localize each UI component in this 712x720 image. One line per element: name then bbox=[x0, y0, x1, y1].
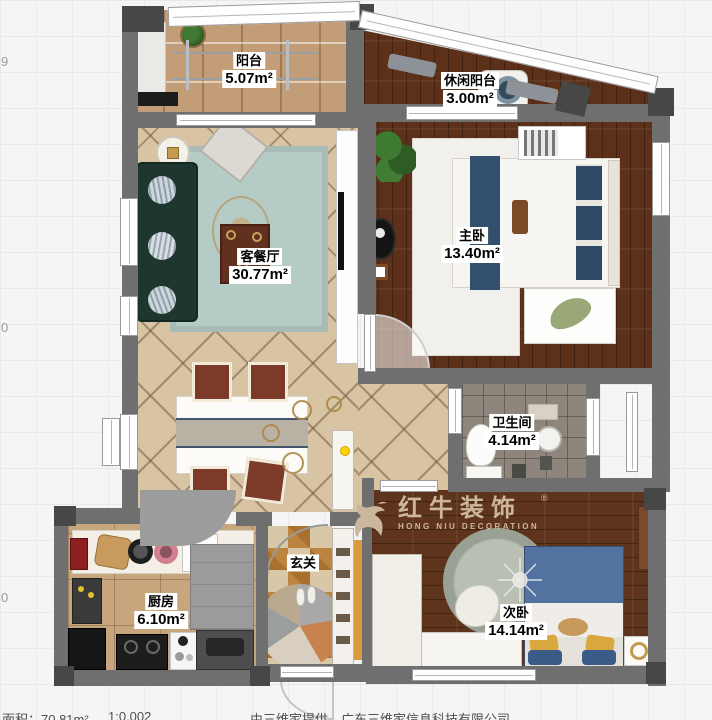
leisure-balcony-sliding-door bbox=[406, 106, 518, 120]
room-area: 4.14m² bbox=[485, 432, 539, 450]
second-bedroom-right-wall bbox=[648, 488, 666, 686]
second-bedroom-door-threshold bbox=[380, 480, 438, 492]
coffee-table-candle-2 bbox=[252, 232, 262, 242]
left-dimension-digit-2: 0 bbox=[1, 320, 8, 335]
room-label-kitchen: 厨房 6.10m² bbox=[134, 593, 188, 629]
cutting-board bbox=[93, 533, 132, 570]
brand-name-cn: 红牛装饰 bbox=[398, 496, 539, 522]
master-plant bbox=[372, 126, 416, 182]
footer-credit: 由三维家提供，广东三维家信息科技有限公司 bbox=[250, 709, 510, 720]
bull-icon bbox=[348, 496, 392, 542]
room-name: 卫生间 bbox=[489, 414, 534, 431]
kitchen-bottom-wall bbox=[54, 670, 268, 686]
room-label-second-bedroom: 次卧 14.14m² bbox=[485, 604, 547, 640]
entry-shoes bbox=[296, 588, 305, 606]
master-bed-tray bbox=[512, 200, 528, 234]
second-bedroom-se-post bbox=[646, 662, 666, 684]
room-area: 14.14m² bbox=[485, 622, 547, 640]
shower-control bbox=[540, 456, 552, 470]
room-label-living-dining: 客餐厅 30.77m² bbox=[229, 248, 291, 284]
footer-scale: 1:0.002 bbox=[108, 709, 151, 720]
room-area: 5.07m² bbox=[222, 70, 276, 88]
second-bed-bolster bbox=[558, 618, 588, 636]
coffee-table-candle-1 bbox=[226, 230, 236, 240]
floor-plan-canvas: 红牛装饰 HONG NIU DECORATION ® 阳台 5.07m² 休闲阳… bbox=[0, 0, 712, 720]
ceiling-fan-icon bbox=[498, 558, 542, 602]
sink-drain bbox=[178, 636, 188, 646]
room-name: 玄关 bbox=[287, 555, 319, 572]
kitchen-left-wall bbox=[54, 524, 68, 684]
drying-rack-pole-2 bbox=[286, 40, 289, 90]
bathroom-window bbox=[586, 398, 600, 456]
master-bed-pillows bbox=[576, 164, 602, 280]
chandelier-ring-3 bbox=[282, 452, 304, 474]
master-door-leaf bbox=[364, 314, 376, 372]
master-art-stripes bbox=[524, 130, 558, 156]
room-label-bathroom: 卫生间 4.14m² bbox=[485, 414, 539, 450]
room-name: 厨房 bbox=[145, 593, 177, 610]
brand-name-en: HONG NIU DECORATION bbox=[398, 522, 539, 532]
drying-rack-pole-1 bbox=[186, 40, 189, 90]
bathroom-door bbox=[448, 388, 462, 434]
vanity-mirror-dots bbox=[375, 228, 385, 238]
stove-burner-2 bbox=[146, 640, 160, 654]
dining-chair-2 bbox=[248, 362, 288, 402]
room-label-balcony: 阳台 5.07m² bbox=[222, 52, 276, 88]
wine-rack bbox=[70, 538, 88, 570]
dining-chair-1 bbox=[192, 362, 232, 402]
room-label-master-bedroom: 主卧 13.40m² bbox=[441, 227, 503, 263]
room-name: 阳台 bbox=[233, 52, 265, 69]
shower-head bbox=[536, 426, 562, 452]
kitchen-entry-divider-wall bbox=[256, 524, 268, 684]
top-left-corner-post bbox=[122, 6, 164, 32]
chandelier-ring-4 bbox=[326, 396, 342, 412]
tv-screen bbox=[338, 192, 344, 270]
entry-shoes-2 bbox=[307, 586, 316, 604]
sofa-pillow-1 bbox=[148, 176, 176, 204]
balcony-sliding-door bbox=[176, 114, 316, 126]
kitchen-se-post bbox=[250, 666, 270, 686]
room-label-leisure-balcony: 休闲阳台 3.00m² bbox=[441, 72, 499, 108]
room-label-entry: 玄关 bbox=[287, 555, 319, 572]
master-bottom-wall bbox=[358, 368, 652, 384]
second-bedroom-ne-post bbox=[644, 488, 666, 510]
living-window-lower bbox=[120, 414, 138, 470]
bathroom-bottom-wall bbox=[448, 478, 660, 492]
shoe-cabinet-items bbox=[336, 548, 350, 644]
footer-total-area: 面积：70.81m² bbox=[2, 709, 89, 720]
master-window bbox=[652, 142, 670, 216]
hallway-cabinet-knob bbox=[340, 446, 350, 456]
master-bed-headboard bbox=[608, 160, 620, 286]
kitchen-sw-post bbox=[54, 666, 74, 686]
grill-food-dots bbox=[78, 586, 84, 592]
living-window-upper bbox=[120, 198, 138, 266]
balcony-mat bbox=[134, 92, 178, 106]
left-dimension-digit-3: 0 bbox=[1, 590, 8, 605]
sink-knob-1 bbox=[175, 652, 184, 661]
second-bed-blue-pillow-2 bbox=[582, 650, 616, 665]
room-name: 休闲阳台 bbox=[441, 72, 499, 89]
room-area: 30.77m² bbox=[229, 266, 291, 284]
room-area: 13.40m² bbox=[441, 245, 503, 263]
living-master-wall bbox=[358, 122, 376, 314]
chandelier-ring-1 bbox=[292, 400, 312, 420]
left-dimension-digit-1: 9 bbox=[1, 54, 8, 69]
sofa-pillow-2 bbox=[148, 232, 176, 260]
room-name: 客餐厅 bbox=[237, 248, 282, 265]
room-area: 6.10m² bbox=[134, 611, 188, 629]
room-area: 3.00m² bbox=[443, 90, 497, 108]
fridge bbox=[68, 628, 106, 670]
second-bedroom-window bbox=[412, 669, 536, 681]
sink-knob-2 bbox=[186, 654, 193, 661]
chandelier-ring-2 bbox=[262, 424, 280, 442]
entry-door-leaf bbox=[280, 666, 334, 678]
stove-burner-1 bbox=[124, 640, 138, 654]
second-bedroom-wardrobe bbox=[372, 554, 422, 670]
second-bed-blue-pillow-1 bbox=[528, 650, 562, 665]
second-nightstand-dish bbox=[630, 642, 648, 660]
kitchen-nw-post bbox=[54, 506, 76, 526]
brand-watermark: 红牛装饰 HONG NIU DECORATION ® bbox=[348, 496, 548, 542]
light-well-window bbox=[626, 392, 638, 472]
registered-mark: ® bbox=[541, 494, 548, 503]
room-name: 次卧 bbox=[500, 604, 532, 621]
living-window-sill bbox=[102, 418, 120, 466]
sofa-pillow-3 bbox=[148, 286, 176, 314]
room-name: 主卧 bbox=[456, 227, 488, 244]
kitchen-island-counter bbox=[190, 544, 254, 630]
plan-footer: 面积：70.81m² 1:0.002 由三维家提供，广东三维家信息科技有限公司 bbox=[0, 709, 712, 720]
range-hood-core bbox=[206, 638, 244, 656]
dining-table-runner bbox=[176, 418, 308, 448]
stove bbox=[116, 634, 168, 670]
master-bed-runner bbox=[470, 156, 500, 290]
living-window-mid bbox=[120, 296, 138, 336]
grill-appliance bbox=[72, 578, 102, 624]
side-table-lamp-core bbox=[167, 147, 179, 159]
